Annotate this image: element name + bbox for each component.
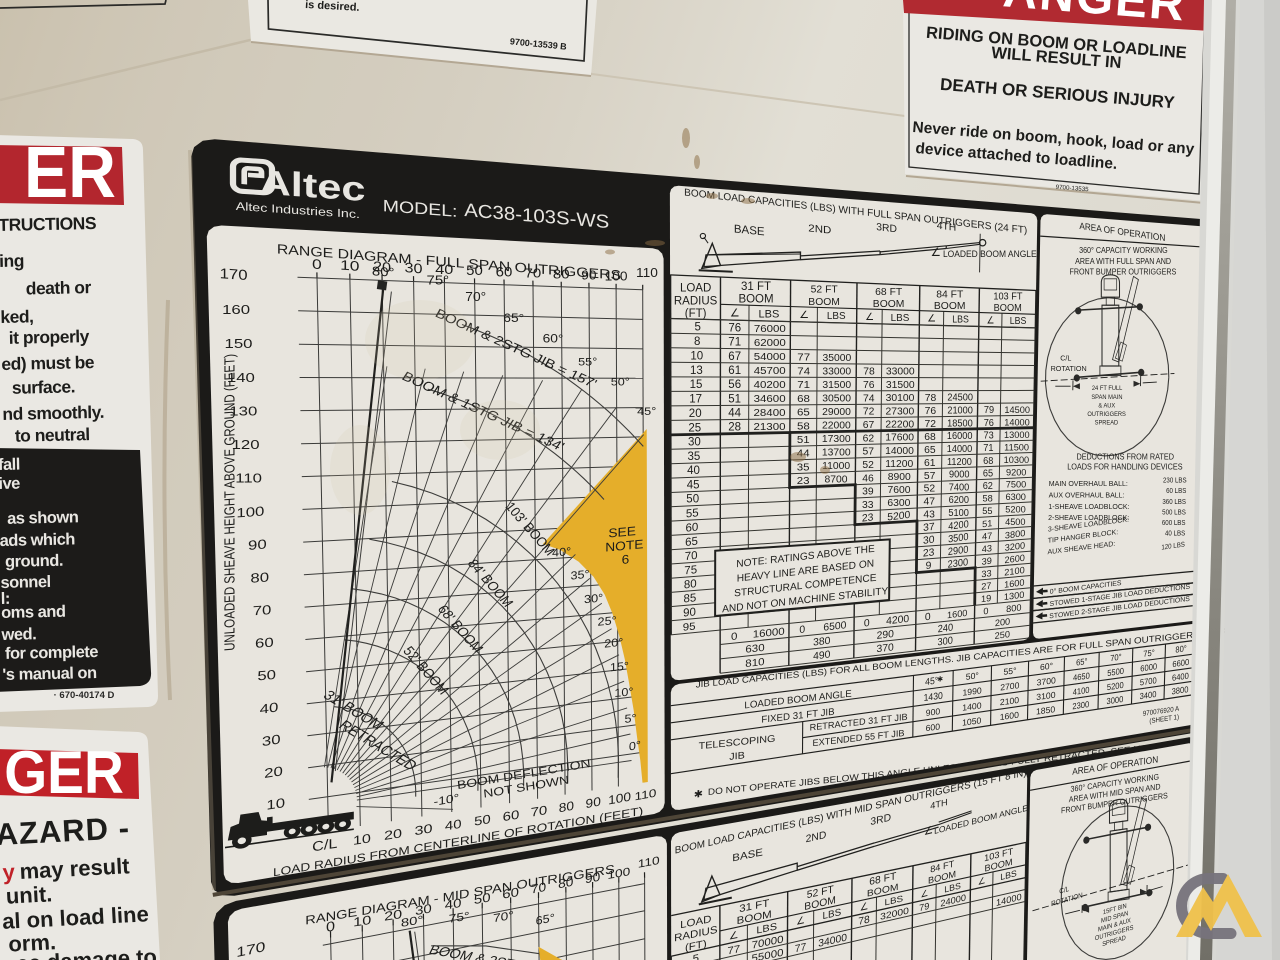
svg-text:10°: 10° <box>614 685 633 700</box>
svg-text:6300: 6300 <box>1005 492 1025 502</box>
svg-text:90: 90 <box>683 606 696 619</box>
svg-text:20°: 20° <box>604 635 623 650</box>
svg-text:LOADED BOOM ANGLE: LOADED BOOM ANGLE <box>943 249 1037 260</box>
svg-text:30: 30 <box>262 732 281 749</box>
svg-text:oms and: oms and <box>1 603 66 622</box>
svg-text:ER: ER <box>24 131 116 212</box>
svg-text:6200: 6200 <box>949 495 970 507</box>
svg-text:90: 90 <box>248 537 267 553</box>
svg-text:24500: 24500 <box>947 392 973 404</box>
svg-text:70°: 70° <box>465 289 486 303</box>
svg-text:13000: 13000 <box>1004 430 1030 440</box>
svg-text:5200: 5200 <box>1005 505 1025 515</box>
svg-text:50°: 50° <box>966 670 979 682</box>
svg-text:67: 67 <box>728 351 741 363</box>
svg-text:LBS: LBS <box>1010 316 1027 327</box>
svg-text:10: 10 <box>690 350 703 362</box>
svg-text:7600: 7600 <box>887 485 910 496</box>
svg-text:47: 47 <box>982 531 992 542</box>
svg-text:71: 71 <box>983 443 993 455</box>
svg-text:51: 51 <box>982 518 992 529</box>
svg-text:21000: 21000 <box>947 405 973 417</box>
svg-text:nd smoothly.: nd smoothly. <box>2 402 104 424</box>
svg-text:28: 28 <box>728 422 741 434</box>
svg-text:∠: ∠ <box>860 901 869 914</box>
svg-text:RADIUS: RADIUS <box>674 296 718 308</box>
svg-text:ed) must be: ed) must be <box>1 352 95 374</box>
svg-text:31 FT: 31 FT <box>741 281 771 293</box>
svg-text:SPAN MAIN: SPAN MAIN <box>1091 393 1122 400</box>
svg-text:500 LBS: 500 LBS <box>1162 509 1186 516</box>
svg-text:55°: 55° <box>1003 665 1016 677</box>
svg-text:1-SHEAVE LOADBLOCK:: 1-SHEAVE LOADBLOCK: <box>1048 504 1129 511</box>
svg-text:65: 65 <box>983 468 994 480</box>
svg-text:0: 0 <box>983 606 988 617</box>
svg-text:14500: 14500 <box>1004 405 1030 415</box>
svg-text:15°: 15° <box>610 659 629 674</box>
svg-text:∠: ∠ <box>796 915 805 928</box>
svg-text:y: y <box>2 859 16 885</box>
svg-text:68: 68 <box>983 455 994 467</box>
svg-text:52 FT: 52 FT <box>811 285 839 296</box>
svg-text:4TH: 4TH <box>937 221 957 234</box>
svg-text:33000: 33000 <box>886 367 915 378</box>
svg-text:2ND: 2ND <box>808 223 831 237</box>
svg-text:79: 79 <box>984 405 994 417</box>
svg-text:∠: ∠ <box>865 312 874 323</box>
svg-text:170: 170 <box>220 266 248 284</box>
svg-text:90: 90 <box>586 794 601 811</box>
svg-text:LOADS FOR HANDLING DEVICES: LOADS FOR HANDLING DEVICES <box>1067 462 1182 472</box>
svg-text:600: 600 <box>926 721 941 733</box>
svg-text:100: 100 <box>236 504 264 521</box>
svg-text:LBS: LBS <box>827 311 846 322</box>
svg-text:ground.: ground. <box>5 552 63 571</box>
svg-text:44: 44 <box>728 407 741 419</box>
svg-text:surface.: surface. <box>12 376 76 397</box>
svg-text:20: 20 <box>689 408 702 420</box>
svg-text:43: 43 <box>923 510 935 521</box>
svg-text:75°: 75° <box>1143 648 1154 659</box>
svg-text:3RD: 3RD <box>876 222 897 235</box>
svg-text:62000: 62000 <box>754 338 786 349</box>
svg-text:51: 51 <box>728 393 741 405</box>
svg-text:56: 56 <box>728 379 741 391</box>
svg-text:76: 76 <box>728 322 741 334</box>
svg-text:death or: death or <box>26 277 92 298</box>
svg-text:11200: 11200 <box>947 456 972 468</box>
svg-text:AREA WITH FULL SPAN AND: AREA WITH FULL SPAN AND <box>1075 256 1171 266</box>
svg-text:27: 27 <box>981 580 991 591</box>
svg-text:30: 30 <box>923 535 935 547</box>
svg-text:9000: 9000 <box>949 469 970 481</box>
svg-text:60: 60 <box>255 635 274 651</box>
svg-text:200: 200 <box>995 616 1010 628</box>
svg-text:103 FT: 103 FT <box>993 291 1022 303</box>
svg-text:43: 43 <box>982 543 992 554</box>
svg-text:45700: 45700 <box>754 366 786 377</box>
svg-text:20: 20 <box>384 827 402 843</box>
svg-text:78: 78 <box>925 393 937 404</box>
svg-text:35: 35 <box>797 462 810 473</box>
svg-text:BOOM: BOOM <box>994 302 1022 314</box>
svg-text:60: 60 <box>503 807 520 824</box>
svg-text:45°: 45° <box>637 405 656 418</box>
svg-text:39: 39 <box>982 556 992 567</box>
svg-text:30100: 30100 <box>886 393 915 404</box>
svg-text:✱: ✱ <box>694 788 703 801</box>
svg-text:ing: ing <box>0 250 24 271</box>
svg-text:unit.: unit. <box>5 881 53 908</box>
svg-text:TRUCTIONS: TRUCTIONS <box>0 213 96 235</box>
svg-text:46: 46 <box>862 473 874 484</box>
svg-text:250: 250 <box>995 629 1010 641</box>
svg-text:∠: ∠ <box>931 246 941 259</box>
svg-text:80: 80 <box>553 268 570 282</box>
svg-text:0: 0 <box>312 257 322 273</box>
svg-text:10: 10 <box>353 832 371 848</box>
svg-text:800: 800 <box>1006 602 1021 614</box>
svg-text:80°: 80° <box>372 263 395 279</box>
svg-text:8900: 8900 <box>888 472 911 483</box>
svg-text:75°: 75° <box>427 273 450 288</box>
svg-text:75: 75 <box>684 564 697 577</box>
svg-text:51: 51 <box>797 434 810 445</box>
svg-text:FRONT BUMPER OUTRIGGERS: FRONT BUMPER OUTRIGGERS <box>1069 267 1176 277</box>
svg-text:40: 40 <box>445 816 462 833</box>
svg-text:65°: 65° <box>1076 657 1087 668</box>
svg-text:27300: 27300 <box>886 406 915 417</box>
svg-text:30: 30 <box>414 822 432 838</box>
svg-text:60: 60 <box>686 521 699 534</box>
svg-text:84 FT: 84 FT <box>936 289 964 300</box>
svg-text:21300: 21300 <box>754 421 786 432</box>
svg-text:33000: 33000 <box>822 366 851 377</box>
svg-text:as shown: as shown <box>7 508 79 527</box>
svg-text:∠: ∠ <box>924 824 933 838</box>
svg-text:630: 630 <box>745 642 764 655</box>
svg-text:50: 50 <box>686 494 699 506</box>
svg-text:55: 55 <box>982 506 992 516</box>
svg-text:14000: 14000 <box>1004 417 1030 427</box>
svg-text:60°: 60° <box>1040 661 1053 673</box>
svg-text:54000: 54000 <box>754 352 786 363</box>
svg-text:for complete: for complete <box>5 643 99 663</box>
svg-text:LBS: LBS <box>759 308 780 320</box>
svg-text:16000: 16000 <box>947 431 973 443</box>
svg-text:31500: 31500 <box>886 380 915 391</box>
svg-text:62: 62 <box>863 433 875 444</box>
svg-text:OUTRIGGERS: OUTRIGGERS <box>1087 411 1126 418</box>
svg-text:4500: 4500 <box>1005 517 1025 527</box>
svg-text:76: 76 <box>863 380 875 391</box>
svg-text:57: 57 <box>924 471 936 482</box>
svg-text:60 LBS: 60 LBS <box>1166 488 1187 495</box>
svg-text:· 670-40174 D: · 670-40174 D <box>54 690 115 701</box>
svg-text:30: 30 <box>404 260 422 277</box>
svg-text:100: 100 <box>605 269 628 283</box>
svg-text:0: 0 <box>925 612 931 624</box>
svg-text:13: 13 <box>690 365 703 377</box>
svg-text:33: 33 <box>981 568 991 579</box>
svg-text:50: 50 <box>466 264 483 279</box>
svg-text:✱: ✱ <box>937 674 943 684</box>
svg-text:71: 71 <box>728 337 741 349</box>
svg-text:65: 65 <box>685 536 698 549</box>
svg-text:31500: 31500 <box>822 380 851 391</box>
svg-text:74: 74 <box>797 366 810 377</box>
svg-text:35: 35 <box>688 451 701 463</box>
svg-text:74: 74 <box>863 393 875 404</box>
svg-text:6300: 6300 <box>887 498 910 509</box>
svg-text:70: 70 <box>525 267 542 281</box>
svg-text:70: 70 <box>531 802 548 819</box>
svg-text:23: 23 <box>797 475 810 486</box>
svg-text:DEDUCTIONS FROM RATED: DEDUCTIONS FROM RATED <box>1076 452 1174 462</box>
svg-text:95: 95 <box>683 621 696 634</box>
svg-text:it properly: it properly <box>9 326 90 348</box>
svg-text:50: 50 <box>474 811 491 828</box>
svg-text:71: 71 <box>797 380 810 391</box>
svg-text:BOOM: BOOM <box>934 301 966 312</box>
svg-text:LBS: LBS <box>952 314 969 325</box>
svg-text:14000: 14000 <box>885 446 914 457</box>
svg-text:0: 0 <box>799 624 805 636</box>
svg-text:SPREAD: SPREAD <box>1095 419 1119 426</box>
svg-text:600 LBS: 600 LBS <box>1162 520 1186 527</box>
svg-text:& AUX: & AUX <box>1098 402 1115 409</box>
svg-text:AZARD -: AZARD - <box>0 810 131 852</box>
svg-text:17600: 17600 <box>885 433 914 444</box>
svg-text:230 LBS: 230 LBS <box>1163 477 1187 484</box>
svg-text:62: 62 <box>983 481 993 493</box>
svg-text:8: 8 <box>694 336 700 348</box>
svg-text:C/L: C/L <box>1060 353 1071 362</box>
svg-text:900: 900 <box>926 706 941 718</box>
svg-text:61: 61 <box>728 365 741 377</box>
svg-text:7400: 7400 <box>949 482 970 494</box>
svg-text:68: 68 <box>797 393 810 404</box>
svg-text:160: 160 <box>222 303 250 318</box>
svg-text:40200: 40200 <box>754 380 786 391</box>
svg-text:50°: 50° <box>611 375 630 388</box>
svg-text:110: 110 <box>636 266 658 280</box>
svg-text:47: 47 <box>923 497 935 508</box>
svg-text:30500: 30500 <box>822 394 851 405</box>
svg-text:61: 61 <box>924 458 936 469</box>
svg-text:52: 52 <box>862 460 874 471</box>
svg-text:∠: ∠ <box>730 307 740 319</box>
svg-text:50: 50 <box>257 668 276 684</box>
svg-text:19: 19 <box>981 593 991 604</box>
svg-text:∠: ∠ <box>927 314 936 325</box>
svg-text:17300: 17300 <box>822 434 851 445</box>
svg-text:24 FT FULL: 24 FT FULL <box>1092 385 1123 392</box>
svg-text:33: 33 <box>862 500 874 511</box>
svg-text:14000: 14000 <box>947 444 973 456</box>
svg-text:∠: ∠ <box>729 929 739 942</box>
svg-text:fall: fall <box>0 456 20 474</box>
svg-text:68 FT: 68 FT <box>875 287 903 298</box>
svg-text:68: 68 <box>924 432 936 443</box>
svg-text:11200: 11200 <box>885 459 913 470</box>
svg-text:10: 10 <box>266 796 285 813</box>
svg-text:35000: 35000 <box>823 353 852 364</box>
svg-text:29000: 29000 <box>822 407 851 418</box>
svg-text:80: 80 <box>559 798 574 815</box>
svg-text:34600: 34600 <box>754 394 786 405</box>
svg-text:∠: ∠ <box>920 888 928 900</box>
svg-text:39: 39 <box>862 487 874 498</box>
svg-text:57: 57 <box>862 447 874 458</box>
svg-text:80: 80 <box>250 570 269 586</box>
svg-text:55°: 55° <box>578 355 597 368</box>
svg-text:72: 72 <box>863 407 875 418</box>
svg-text:60°: 60° <box>543 332 564 345</box>
svg-text:5°: 5° <box>624 711 636 725</box>
svg-text:10300: 10300 <box>1004 455 1030 465</box>
svg-text:7500: 7500 <box>1006 480 1026 490</box>
svg-text:30: 30 <box>688 437 701 449</box>
svg-text:65: 65 <box>924 445 936 456</box>
svg-text:to neutral: to neutral <box>15 424 90 446</box>
svg-text:6: 6 <box>622 552 630 567</box>
svg-text:150: 150 <box>224 337 252 352</box>
svg-text:35°: 35° <box>570 567 589 582</box>
svg-text:23: 23 <box>923 547 935 559</box>
svg-text:ROTATION: ROTATION <box>1051 364 1087 373</box>
svg-text:5100: 5100 <box>948 507 969 519</box>
svg-text:0°: 0° <box>629 738 641 753</box>
svg-text:13700: 13700 <box>822 448 851 459</box>
svg-text:40: 40 <box>687 465 700 477</box>
svg-text:ads which: ads which <box>0 530 75 550</box>
svg-text:76: 76 <box>925 406 937 417</box>
svg-text:15: 15 <box>690 379 703 391</box>
svg-text:40: 40 <box>260 700 279 717</box>
svg-text:17: 17 <box>689 394 702 406</box>
svg-text:AUX OVERHAUL BALL:: AUX OVERHAUL BALL: <box>1049 492 1125 499</box>
svg-text:70: 70 <box>685 550 698 563</box>
svg-text:∠: ∠ <box>978 875 986 887</box>
svg-text:JIB: JIB <box>729 751 745 763</box>
svg-text:9200: 9200 <box>1006 467 1026 477</box>
svg-text:LBS: LBS <box>891 313 910 324</box>
svg-text:360° CAPACITY WORKING: 360° CAPACITY WORKING <box>1079 246 1168 256</box>
svg-text:85: 85 <box>684 592 697 605</box>
svg-text:10: 10 <box>340 258 360 274</box>
svg-text:70: 70 <box>253 603 272 619</box>
svg-text:810: 810 <box>745 657 764 670</box>
svg-text:MAIN OVERHAUL BALL:: MAIN OVERHAUL BALL: <box>1049 481 1128 488</box>
svg-text:76000: 76000 <box>754 324 786 335</box>
svg-text:80°: 80° <box>1175 644 1186 655</box>
svg-text:∠: ∠ <box>799 311 809 321</box>
svg-text:70°: 70° <box>1110 652 1121 663</box>
svg-text:52: 52 <box>924 484 936 495</box>
svg-text:BOOM: BOOM <box>873 299 905 310</box>
svg-text:28400: 28400 <box>754 407 786 418</box>
svg-text:73: 73 <box>983 430 994 442</box>
svg-text:25°: 25° <box>598 614 617 629</box>
svg-text:BOOM: BOOM <box>808 297 840 308</box>
svg-text:58: 58 <box>797 421 810 432</box>
svg-text:40 LBS: 40 LBS <box>1165 530 1186 537</box>
svg-text:360 LBS: 360 LBS <box>1162 498 1186 505</box>
svg-text:60: 60 <box>496 265 513 280</box>
svg-text:0: 0 <box>864 618 870 630</box>
svg-text:ive: ive <box>0 475 20 493</box>
svg-text:77: 77 <box>797 352 810 363</box>
svg-text:UNLOADED SHEAVE HEIGHT ABOVE G: UNLOADED SHEAVE HEIGHT ABOVE GROUND (FEE… <box>221 353 238 651</box>
svg-text:0: 0 <box>731 631 737 643</box>
svg-text:30°: 30° <box>584 591 603 606</box>
svg-text:45: 45 <box>687 479 700 491</box>
svg-text:20: 20 <box>264 764 283 781</box>
svg-text:55: 55 <box>686 507 699 520</box>
svg-text:25: 25 <box>688 422 701 434</box>
svg-text:'s manual on: 's manual on <box>2 664 97 684</box>
svg-text:67: 67 <box>863 420 875 431</box>
svg-text:11500: 11500 <box>1004 442 1029 452</box>
svg-text:80: 80 <box>684 578 697 591</box>
svg-text:5: 5 <box>694 322 700 334</box>
svg-text:GER: GER <box>4 740 124 807</box>
svg-text:65°: 65° <box>503 312 524 325</box>
svg-text:5: 5 <box>693 953 699 960</box>
svg-text:LOAD: LOAD <box>680 283 711 295</box>
svg-text:∠: ∠ <box>986 315 994 326</box>
svg-text:90: 90 <box>581 268 596 282</box>
svg-text:37: 37 <box>923 522 935 534</box>
svg-text:ked,: ked, <box>0 306 33 327</box>
svg-text:78: 78 <box>863 367 875 378</box>
svg-text:wed.: wed. <box>0 625 36 644</box>
svg-text:65: 65 <box>797 407 810 418</box>
svg-text:BOOM: BOOM <box>738 294 773 306</box>
svg-text:110: 110 <box>235 471 262 486</box>
svg-text:58: 58 <box>982 494 992 504</box>
